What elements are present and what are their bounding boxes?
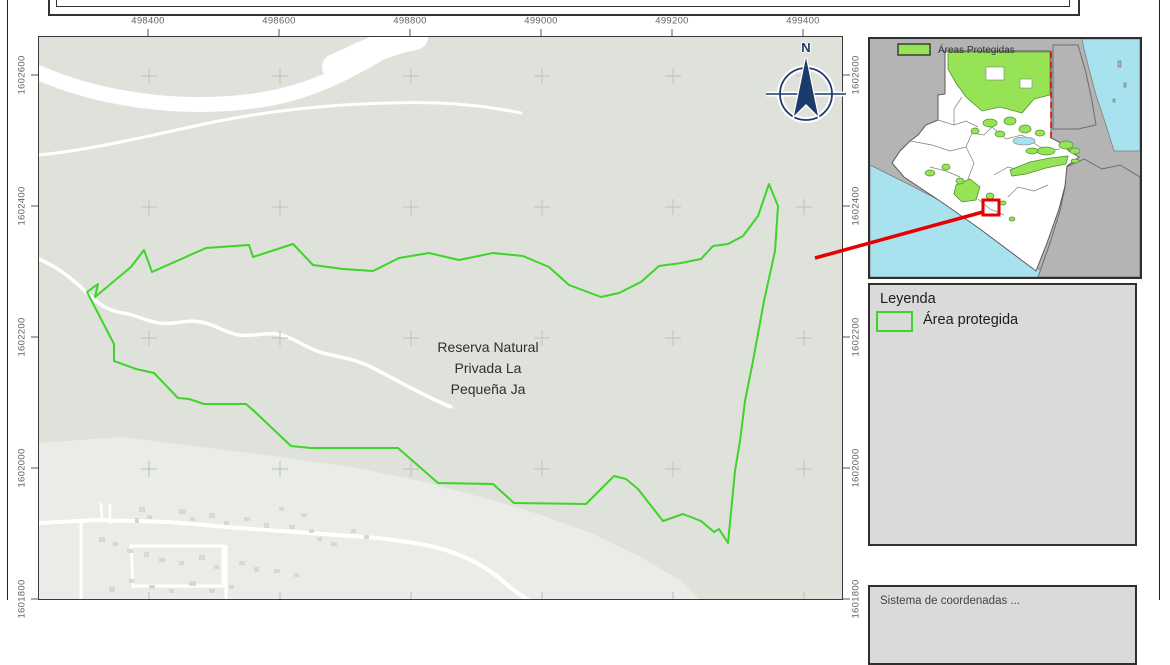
protected-area-swatch: [876, 311, 913, 332]
y-axis-label-right: 1602600: [851, 55, 862, 94]
page-border-left: [7, 0, 8, 600]
main-map-svg: [39, 37, 843, 600]
y-axis-label-left: 1602200: [17, 317, 28, 356]
y-axis-label-left: 1602000: [17, 448, 28, 487]
x-axis-label: 498600: [262, 16, 296, 27]
x-axis-label: 499200: [655, 16, 689, 27]
y-axis-label-left: 1602600: [17, 55, 28, 94]
reserve-name-line2: Privada La: [400, 358, 576, 379]
page-border-right: [1159, 0, 1160, 600]
reserve-name-line1: Reserva Natural: [400, 337, 576, 358]
north-label: N: [801, 40, 810, 55]
x-axis-label: 499400: [786, 16, 820, 27]
reserve-name-label: Reserva Natural Privada La Pequeña Ja: [400, 337, 576, 400]
x-axis-label: 499000: [524, 16, 558, 27]
legend-title: Leyenda: [880, 291, 936, 307]
y-axis-label-left: 1601800: [17, 579, 28, 618]
coordinate-system-info-box: Sistema de coordenadas ...: [868, 585, 1137, 665]
x-axis-label: 498800: [393, 16, 427, 27]
map-layout-page: { "page": { "title_box_text": "" }, "map…: [0, 0, 1170, 600]
main-map-canvas: [38, 36, 843, 600]
y-axis-label-right: 1601800: [851, 579, 862, 618]
inset-legend-label: Áreas Protegidas: [938, 45, 1015, 56]
reserve-name-line3: Pequeña Ja: [400, 379, 576, 400]
y-axis-label-left: 1602400: [17, 186, 28, 225]
north-arrow: N: [758, 36, 854, 140]
inset-overview-map: Áreas Protegidas: [868, 37, 1142, 279]
legend-item-label: Área protegida: [923, 312, 1018, 328]
inset-map-svg: [870, 39, 1140, 277]
legend-box: Leyenda Área protegida: [868, 283, 1137, 546]
y-axis-label-right: 1602000: [851, 448, 862, 487]
coordinate-system-text: Sistema de coordenadas ...: [880, 595, 1020, 607]
title-box-inner-frame: [56, 0, 1070, 7]
x-axis-label: 498400: [131, 16, 165, 27]
y-axis-label-right: 1602200: [851, 317, 862, 356]
y-axis-label-right: 1602400: [851, 186, 862, 225]
